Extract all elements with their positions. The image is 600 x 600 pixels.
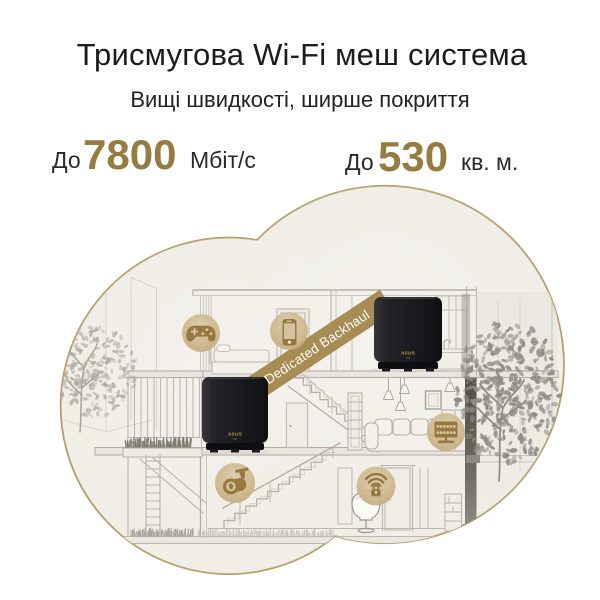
svg-text:Мбіт/с: Мбіт/с <box>190 147 256 173</box>
svg-text:кв. м.: кв. м. <box>461 149 518 175</box>
svg-text:Вищі швидкості, ширше покриття: Вищі швидкості, ширше покриття <box>130 87 469 112</box>
svg-text:7800: 7800 <box>83 131 176 178</box>
svg-text:Трисмугова Wi-Fi меш система: Трисмугова Wi-Fi меш система <box>77 37 528 72</box>
svg-text:ASUS: ASUS <box>227 432 243 437</box>
svg-text:До: До <box>345 149 374 175</box>
svg-text:До: До <box>52 147 81 173</box>
svg-text:530: 530 <box>378 133 448 180</box>
svg-text:ASUS: ASUS <box>400 351 416 356</box>
